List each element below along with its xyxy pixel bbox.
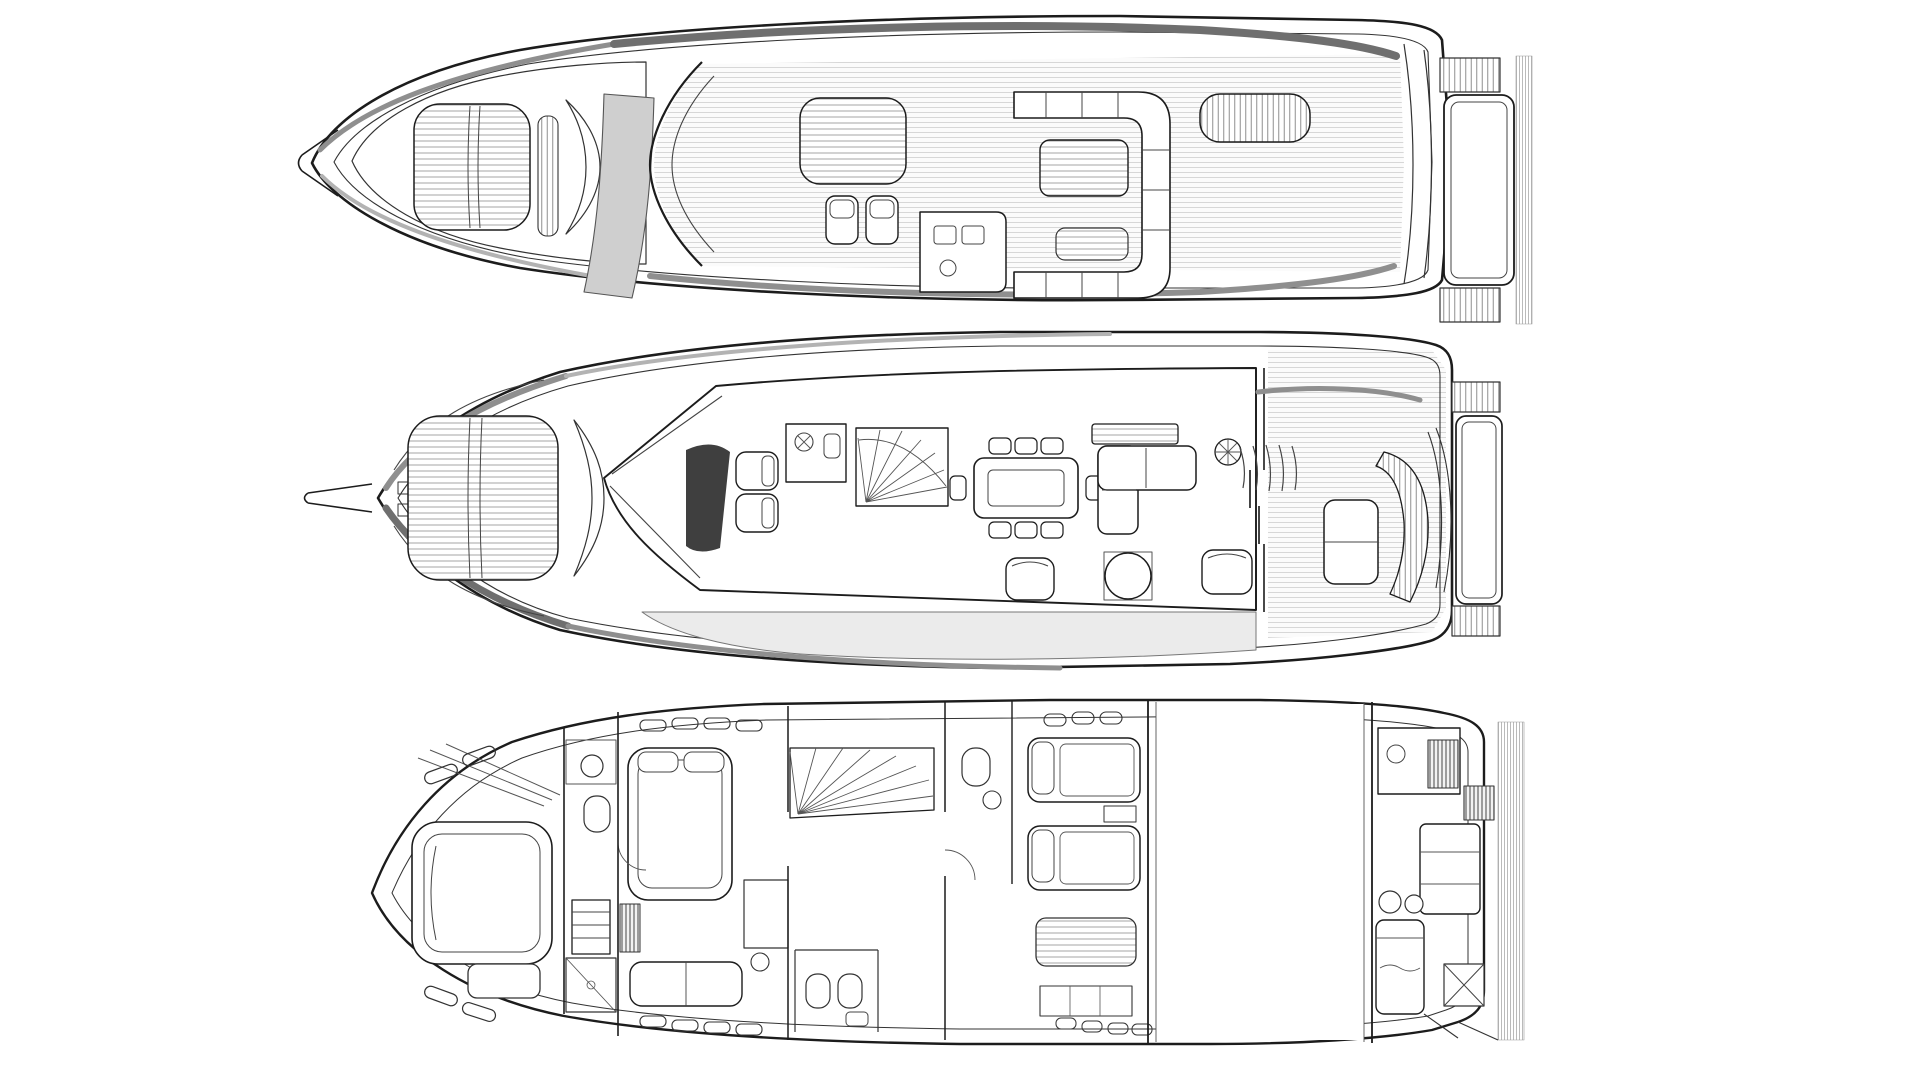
master-pillow-2: [684, 752, 724, 772]
bow-sunpad: [414, 104, 530, 230]
galley-counter: [786, 424, 846, 482]
dining-table: [974, 458, 1078, 518]
master-pillow-1: [638, 752, 678, 772]
lower-deck: [372, 700, 1524, 1044]
grill-vent: [1200, 94, 1310, 142]
aft-bath-toilet: [962, 748, 990, 786]
stair-louver: [620, 904, 640, 952]
swim-platform: [1444, 95, 1514, 285]
vip-bed: [412, 822, 552, 964]
mid-bath-bidet: [838, 974, 862, 1008]
settee-sunpad: [1056, 228, 1128, 260]
stern-margin-hatch: [1516, 56, 1532, 324]
sofa-main: [1098, 446, 1196, 490]
dining-chair-left: [950, 476, 966, 500]
crew-stove: [1428, 740, 1458, 788]
crew-wc: [1379, 891, 1401, 913]
guest-bed-1: [1028, 738, 1140, 802]
portlight-fore-bottom-2: [461, 1001, 497, 1023]
stern-steps-top: [1452, 382, 1500, 412]
mid-bath-toilet: [806, 974, 830, 1008]
vip-seat: [468, 964, 540, 998]
bow-pulpit: [305, 484, 373, 512]
settee-table: [1040, 140, 1128, 196]
swim-platform: [1456, 416, 1502, 604]
armchair-right: [1202, 550, 1252, 594]
coffee-table: [1105, 553, 1151, 599]
dining-chair-bottom-2: [1015, 522, 1037, 538]
master-vanity: [744, 880, 788, 948]
stern-steps-bottom: [1440, 288, 1500, 322]
bow-step-band: [538, 116, 558, 236]
transom-diagonal: [1458, 1022, 1498, 1040]
crew-bunk: [1420, 824, 1480, 914]
dining-chair-top-2: [1015, 438, 1037, 454]
deck-planking: [654, 54, 1404, 272]
yacht-plan-image: [0, 0, 1920, 1080]
guest-bench: [1036, 918, 1136, 966]
foredeck-sunpad: [408, 416, 558, 580]
stern-steps-bottom: [1452, 606, 1500, 636]
helm-chair-aft: [736, 494, 778, 532]
dining-chair-bottom-3: [1041, 522, 1063, 538]
engine-room: [1156, 704, 1364, 1040]
guest-bed-2: [1028, 826, 1140, 890]
transom-margin-hatch: [1498, 722, 1524, 1040]
flybridge-deck: [299, 16, 1533, 324]
stern-steps-top: [1440, 58, 1500, 92]
winder-stair-outline: [790, 748, 934, 818]
dining-chair-bottom-1: [989, 522, 1011, 538]
wet-bar: [920, 212, 1006, 292]
crew-stair-hatch: [1464, 786, 1494, 820]
helm-chair-fwd: [736, 452, 778, 490]
sideboard: [1092, 424, 1178, 444]
dining-chair-top-1: [989, 438, 1011, 454]
main-deck: [305, 332, 1503, 668]
armchair-left: [1006, 558, 1054, 600]
crew-bed: [1376, 920, 1424, 1014]
helm-console: [800, 98, 906, 184]
portlight-fore-bottom-1: [423, 985, 459, 1008]
dining-chair-top-3: [1041, 438, 1063, 454]
crew-basin: [1405, 895, 1423, 913]
yacht-plan-svg: [0, 0, 1920, 1080]
fwd-bath-sink: [581, 755, 603, 777]
companionway-stairs: [572, 900, 610, 954]
fwd-bath-toilet: [584, 796, 610, 832]
